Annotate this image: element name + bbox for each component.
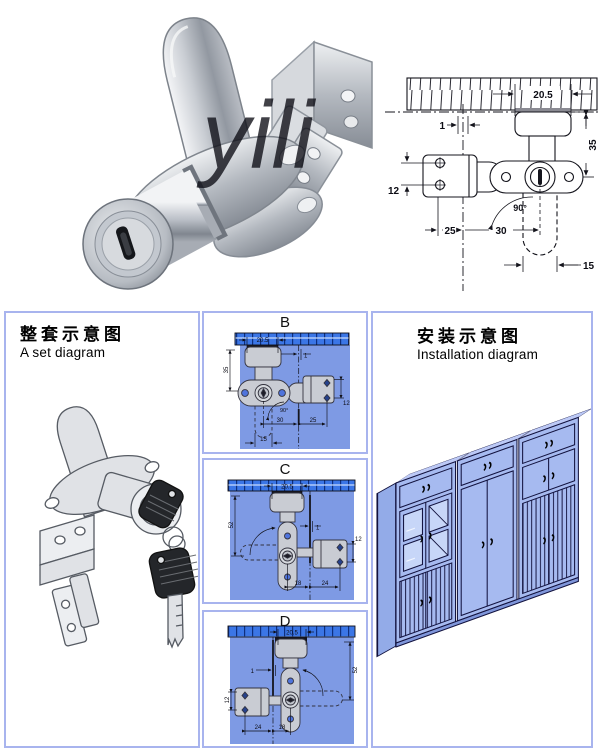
dim-slot-width: 20.5 <box>257 338 269 344</box>
dim-slot-width: 20.5 <box>286 631 298 637</box>
cam-arm <box>297 548 315 557</box>
dim-depth: 35 <box>224 366 230 373</box>
install-panel: 安装示意图 Installation diagram <box>371 311 593 748</box>
lock-cap <box>515 112 571 136</box>
dim-offset-a: 18 <box>295 581 302 587</box>
dim-depth: 52 <box>229 521 235 528</box>
variant-b-panel: B <box>202 311 368 454</box>
dim-depth: 35 <box>588 139 599 151</box>
cabinet-fronts <box>396 417 578 647</box>
variant-d-drawing: 20.5 1 52 12 24 18 <box>204 612 366 746</box>
dim-bracket-pitch: 12 <box>355 537 362 543</box>
dim-offset-b: 24 <box>322 581 329 587</box>
set-key-hanging <box>148 546 198 647</box>
dim-bracket-pitch: 12 <box>343 401 350 407</box>
dim-edge-gap: 1 <box>439 121 445 132</box>
cabinet-unit-3 <box>519 417 579 598</box>
product-sheet: { "photo": { "watermark": "yili" }, "set… <box>0 0 600 756</box>
cabinet-gable <box>377 483 396 656</box>
dim-angle: 90° <box>513 203 527 213</box>
dim-depth: 52 <box>353 666 359 673</box>
set-panel: 整套示意图 A set diagram <box>4 311 200 748</box>
dim-bracket-pitch: 12 <box>225 696 231 703</box>
dim-cam-width: 15 <box>583 261 595 272</box>
variant-d-panel: D <box>202 610 368 748</box>
set-drawing <box>6 313 198 746</box>
mounting-bar <box>235 333 349 345</box>
watermark-text: yili <box>196 82 317 189</box>
cabinet-unit-1 <box>396 462 456 643</box>
bar-slot <box>515 108 571 112</box>
dim-right-offset: 30 <box>277 418 284 424</box>
dim-right-offset: 30 <box>495 226 507 237</box>
cabinet-unit-2 <box>457 439 517 620</box>
dim-offset-a: 24 <box>255 725 262 731</box>
variant-b-drawing: 20.5 1 35 12 30 25 15 90° <box>204 313 366 452</box>
dim-bracket-pitch: 12 <box>388 186 400 197</box>
product-photo: yili <box>10 0 388 298</box>
variant-c-panel: C <box>202 458 368 604</box>
dim-angle: 90° <box>280 408 288 414</box>
dim-left-offset: 25 <box>310 418 317 424</box>
key-blade <box>168 594 183 647</box>
set-strap-bracket <box>50 573 103 646</box>
lock-cylinder <box>83 199 210 289</box>
variant-c-drawing: 20.5 1 52 12 18 24 <box>204 460 366 602</box>
spec-diagram: 20.5 1 35 12 25 30 15 90° <box>385 58 600 295</box>
dim-offset-b: 18 <box>279 725 286 731</box>
dim-left-offset: 25 <box>444 226 456 237</box>
dim-slot-width: 20.5 <box>281 485 293 491</box>
dim-cam-width: 15 <box>260 437 267 443</box>
dim-slot-width: 20.5 <box>533 90 553 101</box>
cabinet-drawing <box>373 313 591 746</box>
lock-neck <box>529 136 555 162</box>
bracket <box>235 688 269 716</box>
